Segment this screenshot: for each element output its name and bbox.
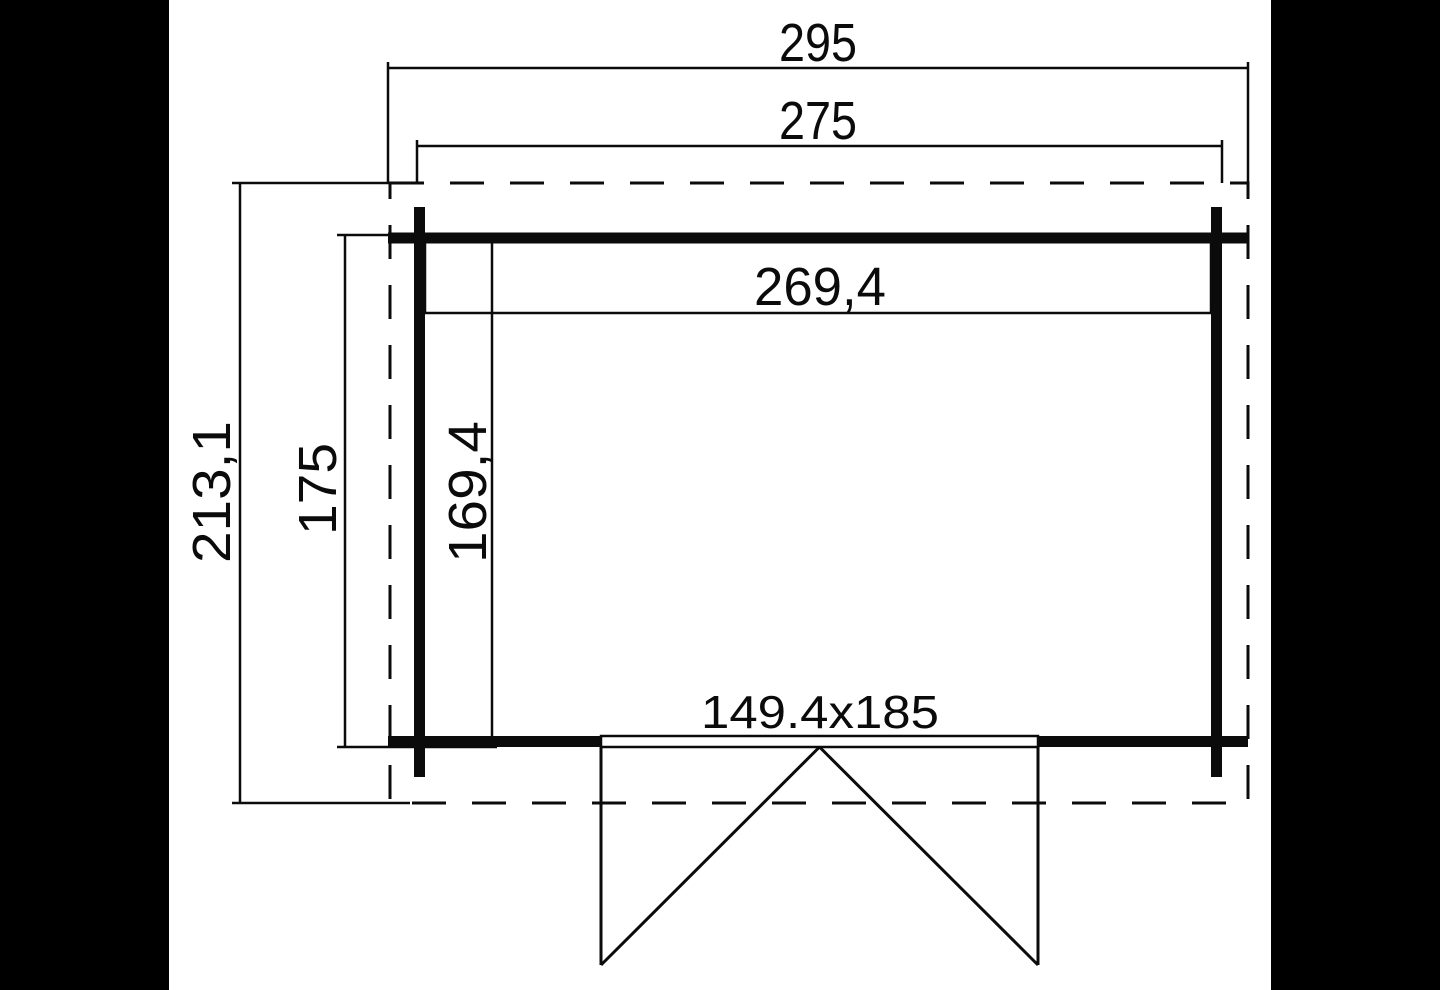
door-size-label: 149.4x185 (701, 686, 939, 738)
dim-label-wall-width: 275 (779, 91, 857, 151)
letterbox-bar-right (1271, 0, 1440, 990)
floor-plan-drawing: 295 275 269,4 213,1 175 169,4 149.4x185 (0, 0, 1440, 990)
floor-plan-canvas: 295 275 269,4 213,1 175 169,4 149.4x185 (0, 0, 1440, 990)
letterbox-bar-left (0, 0, 169, 990)
dim-label-interior-width: 269,4 (754, 257, 886, 317)
dim-label-overall-depth: 213,1 (182, 421, 242, 563)
dim-label-overall-width: 295 (779, 13, 857, 73)
dim-label-wall-depth: 175 (288, 443, 348, 535)
dim-label-interior-depth: 169,4 (438, 421, 498, 563)
